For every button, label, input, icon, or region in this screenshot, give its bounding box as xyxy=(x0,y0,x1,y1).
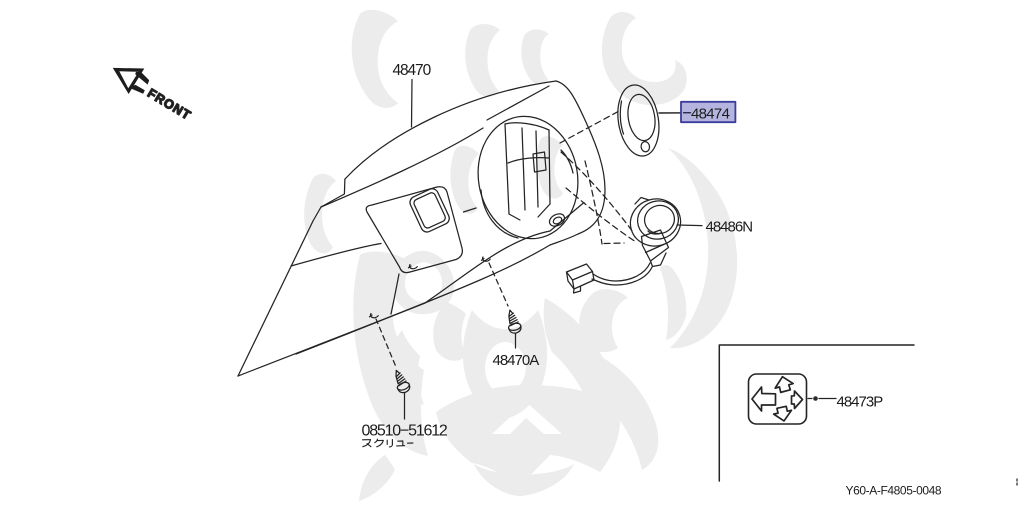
svg-text:48486N: 48486N xyxy=(706,218,753,235)
svg-text:FRONT: FRONT xyxy=(145,85,194,123)
svg-text:48473P: 48473P xyxy=(837,393,884,410)
svg-text:08510−51612: 08510−51612 xyxy=(362,423,448,440)
svg-text:48474: 48474 xyxy=(691,105,730,122)
svg-text:48470: 48470 xyxy=(393,62,432,79)
svg-text:Y60-A-F4805-0048: Y60-A-F4805-0048 xyxy=(846,483,942,497)
svg-text:48470A: 48470A xyxy=(493,352,540,369)
